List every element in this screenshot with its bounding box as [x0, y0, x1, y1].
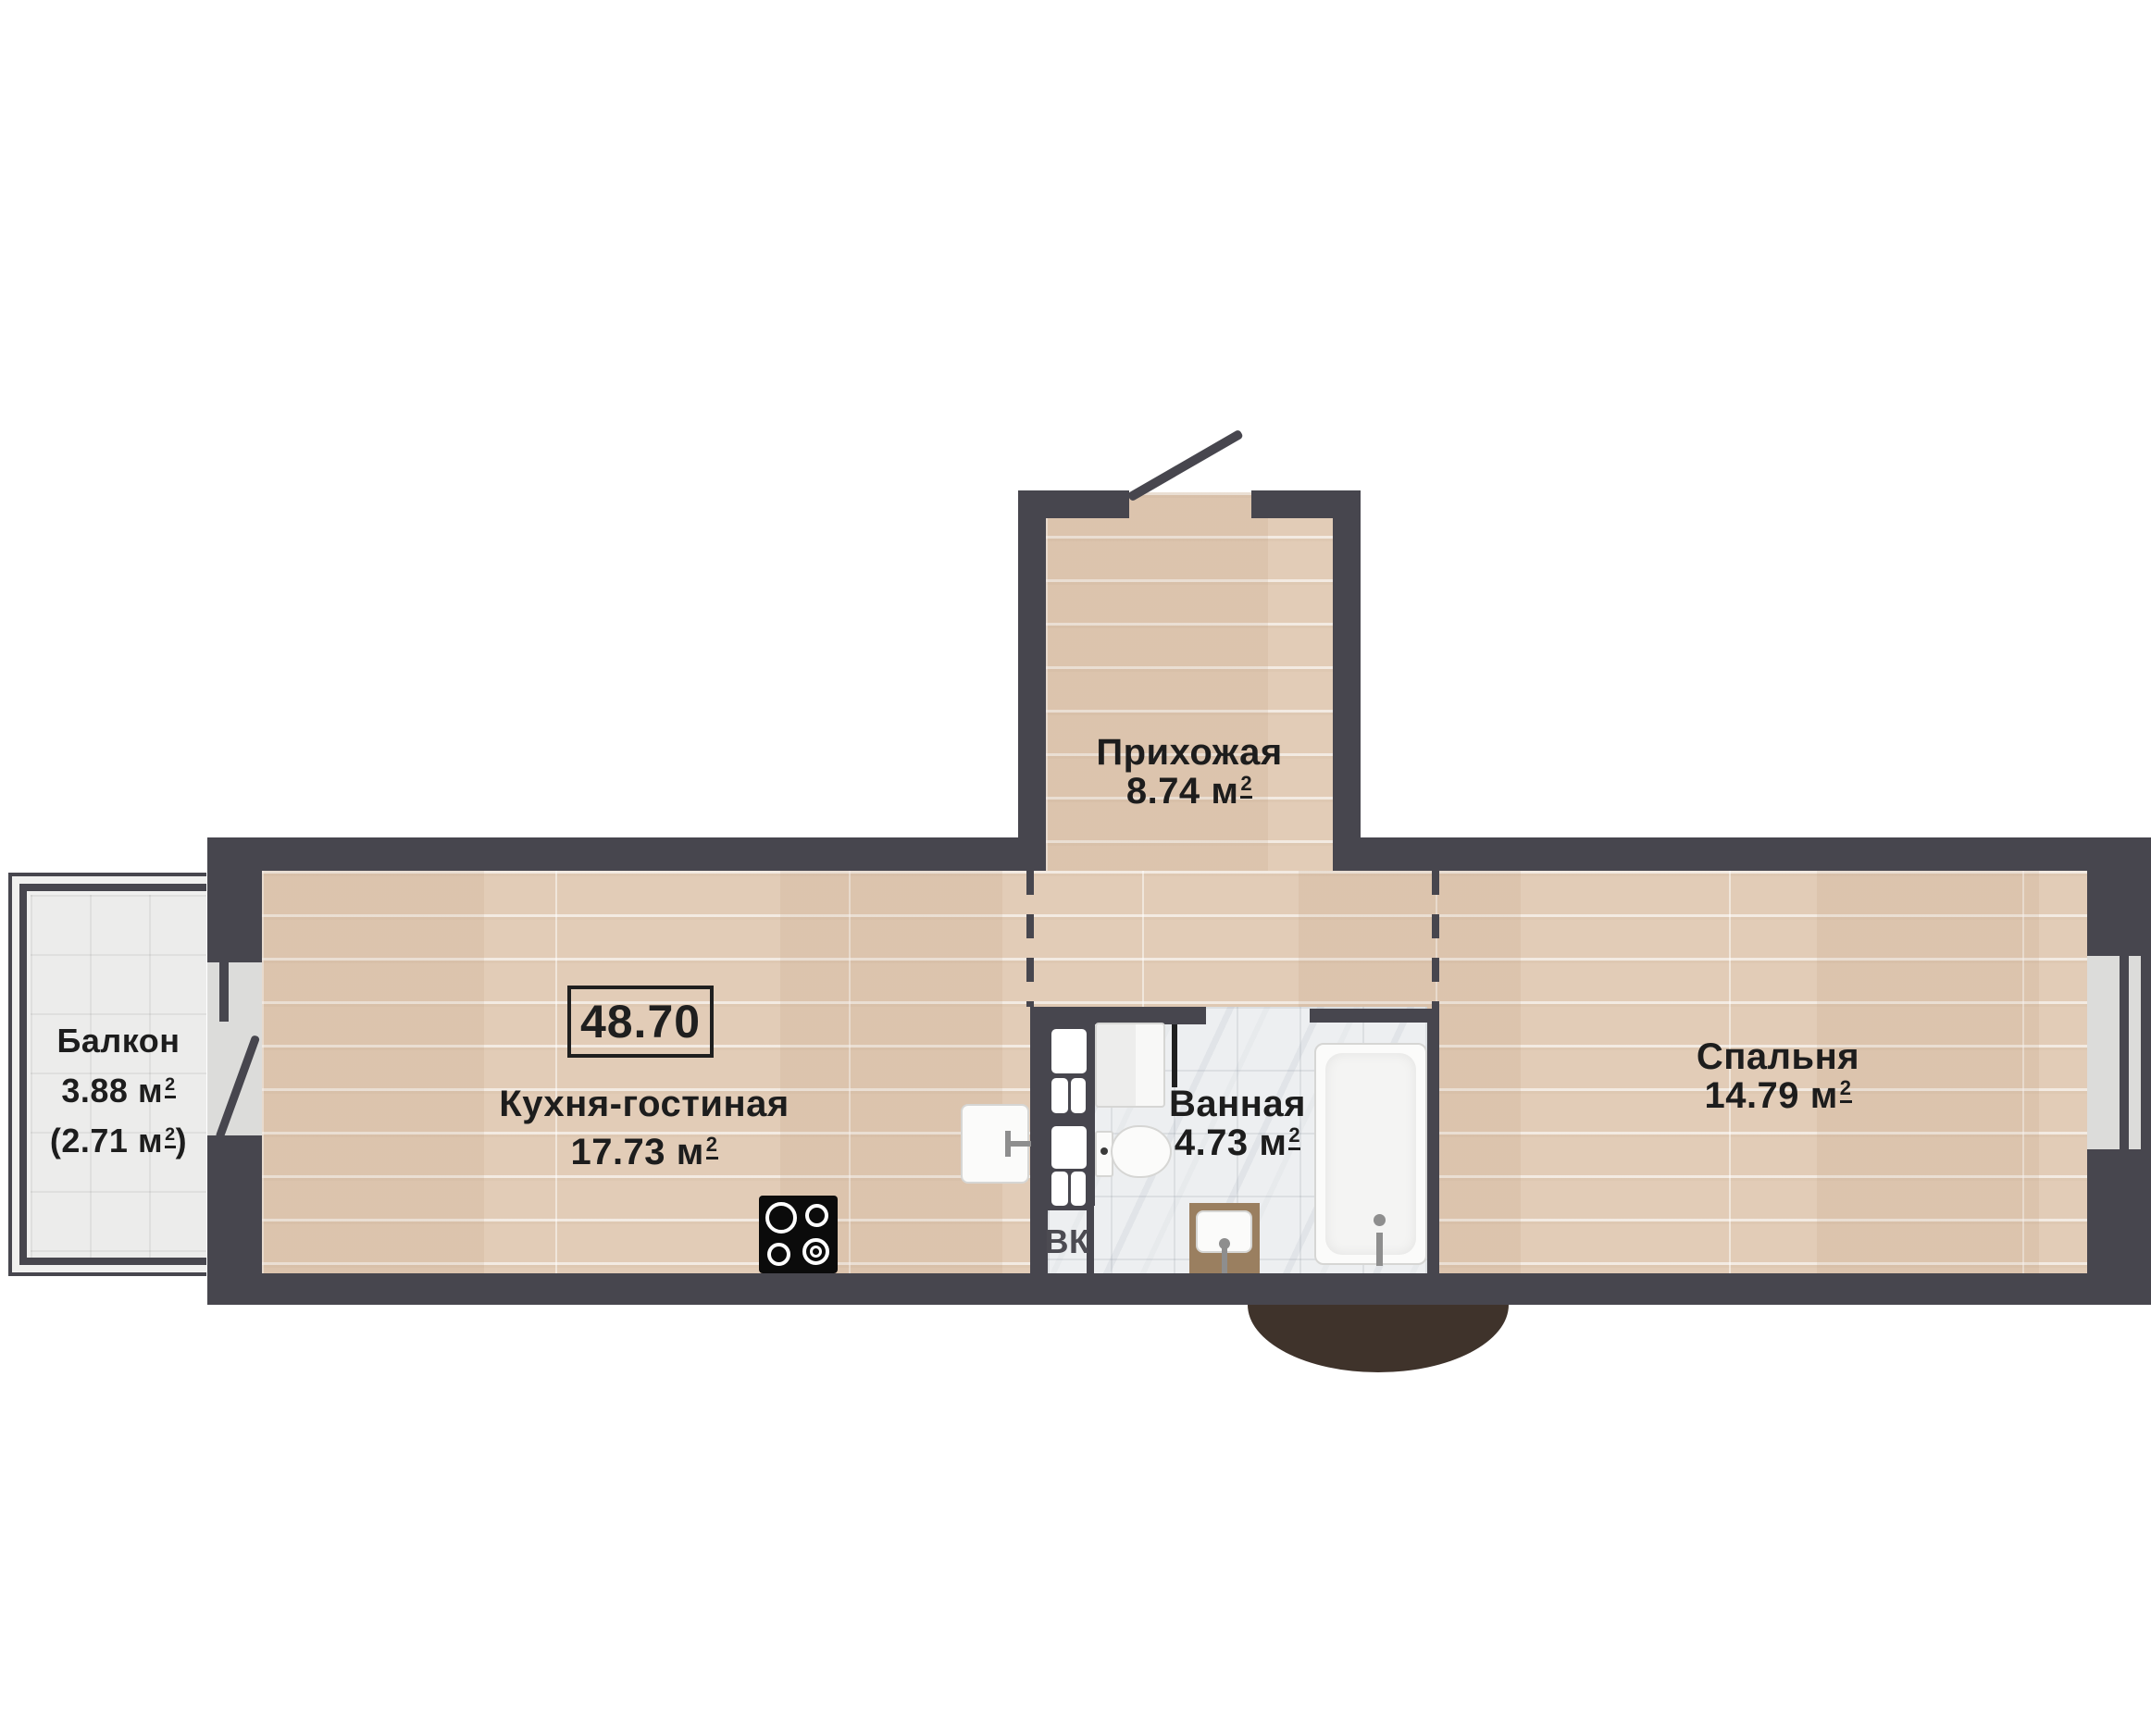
stove-burner: [805, 1204, 828, 1227]
zone-dashed-line-right: [1432, 871, 1439, 1009]
riser-pipe: [1051, 1126, 1087, 1169]
riser-pipe: [1051, 1172, 1068, 1206]
hallway-wall-left: [1018, 490, 1046, 871]
riser-pipe: [1071, 1172, 1086, 1206]
bathtub-faucet-knob: [1374, 1214, 1386, 1226]
stove-burner: [765, 1202, 797, 1234]
stove-burner-inner-ring: [810, 1246, 822, 1258]
outer-wall-bottom: [207, 1273, 2151, 1305]
room-area-reduced: (2.71 м2): [31, 1116, 206, 1166]
room-name: Ванная: [1108, 1085, 1367, 1123]
zone-dashed-line-left: [1026, 871, 1034, 1007]
riser-pipe: [1051, 1078, 1068, 1113]
duct-label: ВК: [1040, 1223, 1094, 1260]
stove-burner: [767, 1243, 790, 1266]
outer-wall-top-right: [1361, 837, 2151, 871]
bathroom-wall-top-right: [1310, 1009, 1439, 1023]
total-area-box: 48.70: [567, 986, 714, 1058]
room-name: Балкон: [31, 1016, 206, 1066]
bathroom-wall-right: [1427, 1009, 1439, 1305]
room-name: Прихожая: [1046, 733, 1333, 772]
floor-plan: ВК 48.70 Кухня-гостиная 17.73 м2 Прихожа…: [0, 0, 2151, 1736]
hallway-wall-right: [1333, 490, 1361, 871]
plumbing-riser-panel: [1048, 1024, 1095, 1206]
vanity-faucet: [1222, 1247, 1227, 1273]
bathtub-faucet: [1376, 1233, 1383, 1266]
hallway-wall-top-left: [1018, 490, 1129, 518]
balcony-label: Балкон 3.88 м2 (2.71 м2): [31, 1016, 206, 1166]
hallway-wall-top-right: [1251, 490, 1361, 518]
room-name: Кухня-гостиная: [459, 1080, 829, 1128]
hallway-label: Прихожая 8.74 м2: [1046, 733, 1333, 811]
duct-label-text: ВК: [1045, 1222, 1090, 1260]
room-area: 8.74 м2: [1046, 772, 1333, 811]
bathroom-label: Ванная 4.73 м2: [1108, 1085, 1367, 1162]
entry-arc: [1248, 1305, 1509, 1372]
entrance-door-leaf: [1127, 429, 1244, 502]
outer-wall-top-left: [207, 837, 1018, 871]
toilet-flush-button: [1100, 1147, 1108, 1155]
riser-pipe: [1071, 1078, 1086, 1113]
hallway-floor: [1046, 492, 1333, 872]
room-name: Спальня: [1593, 1037, 1963, 1076]
room-area: 17.73 м2: [459, 1128, 829, 1176]
room-area: 3.88 м2: [31, 1066, 206, 1116]
balcony-window-divider: [219, 962, 229, 1022]
kitchen-living-label: Кухня-гостиная 17.73 м2: [459, 1080, 829, 1176]
bedroom-window-frame: [2120, 956, 2129, 1149]
stove-burner: [802, 1238, 829, 1265]
stove: [759, 1196, 838, 1273]
bedroom-window: [2087, 956, 2141, 1149]
kitchen-sink-faucet-handle: [1005, 1131, 1011, 1157]
room-area: 14.79 м2: [1593, 1076, 1963, 1115]
riser-pipe: [1051, 1029, 1087, 1073]
total-area-value: 48.70: [580, 995, 701, 1048]
room-area: 4.73 м2: [1108, 1123, 1367, 1162]
bathroom-door-leaf: [1172, 1024, 1177, 1087]
bedroom-label: Спальня 14.79 м2: [1593, 1037, 1963, 1115]
